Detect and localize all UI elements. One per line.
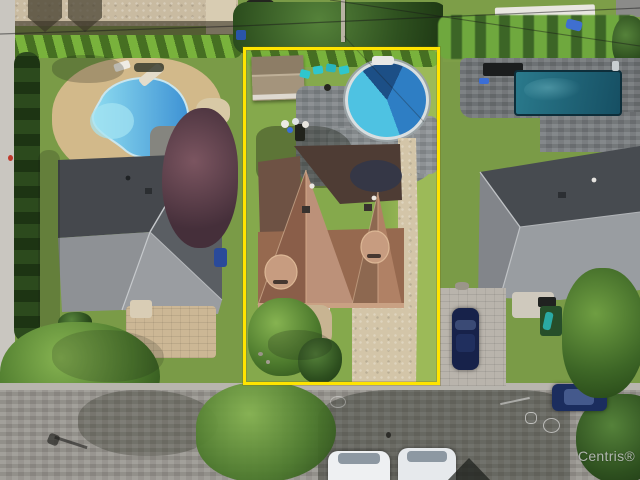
blue-car-driveway-windshield <box>455 320 476 330</box>
chalk-circle-2 <box>330 396 346 408</box>
street-lamp-dot <box>386 432 391 438</box>
playhouse <box>540 306 562 336</box>
street-tree-canopy-left <box>196 382 336 480</box>
white-car-2 <box>398 448 456 480</box>
scene: Centris® <box>0 0 640 480</box>
chalk-flower <box>525 412 537 424</box>
white-car-1 <box>328 451 390 480</box>
right-corner-tree <box>562 268 640 398</box>
chalk-heart <box>543 418 560 433</box>
playhouse-slide <box>542 311 554 330</box>
right-rocks <box>455 282 469 290</box>
left-front-tree-shadow <box>52 330 164 382</box>
left-recycle-bin <box>214 248 227 267</box>
left-house-shadow <box>38 150 60 330</box>
property-boundary-outline <box>243 47 440 385</box>
blue-car-driveway <box>452 308 479 370</box>
centris-watermark: Centris® <box>578 448 635 464</box>
fire-hydrant <box>8 155 13 161</box>
white-car-2-windshield <box>407 451 447 462</box>
left-front-walk <box>130 300 152 318</box>
blue-car-driveway-roof <box>456 334 475 352</box>
white-car-1-windshield <box>338 453 380 464</box>
